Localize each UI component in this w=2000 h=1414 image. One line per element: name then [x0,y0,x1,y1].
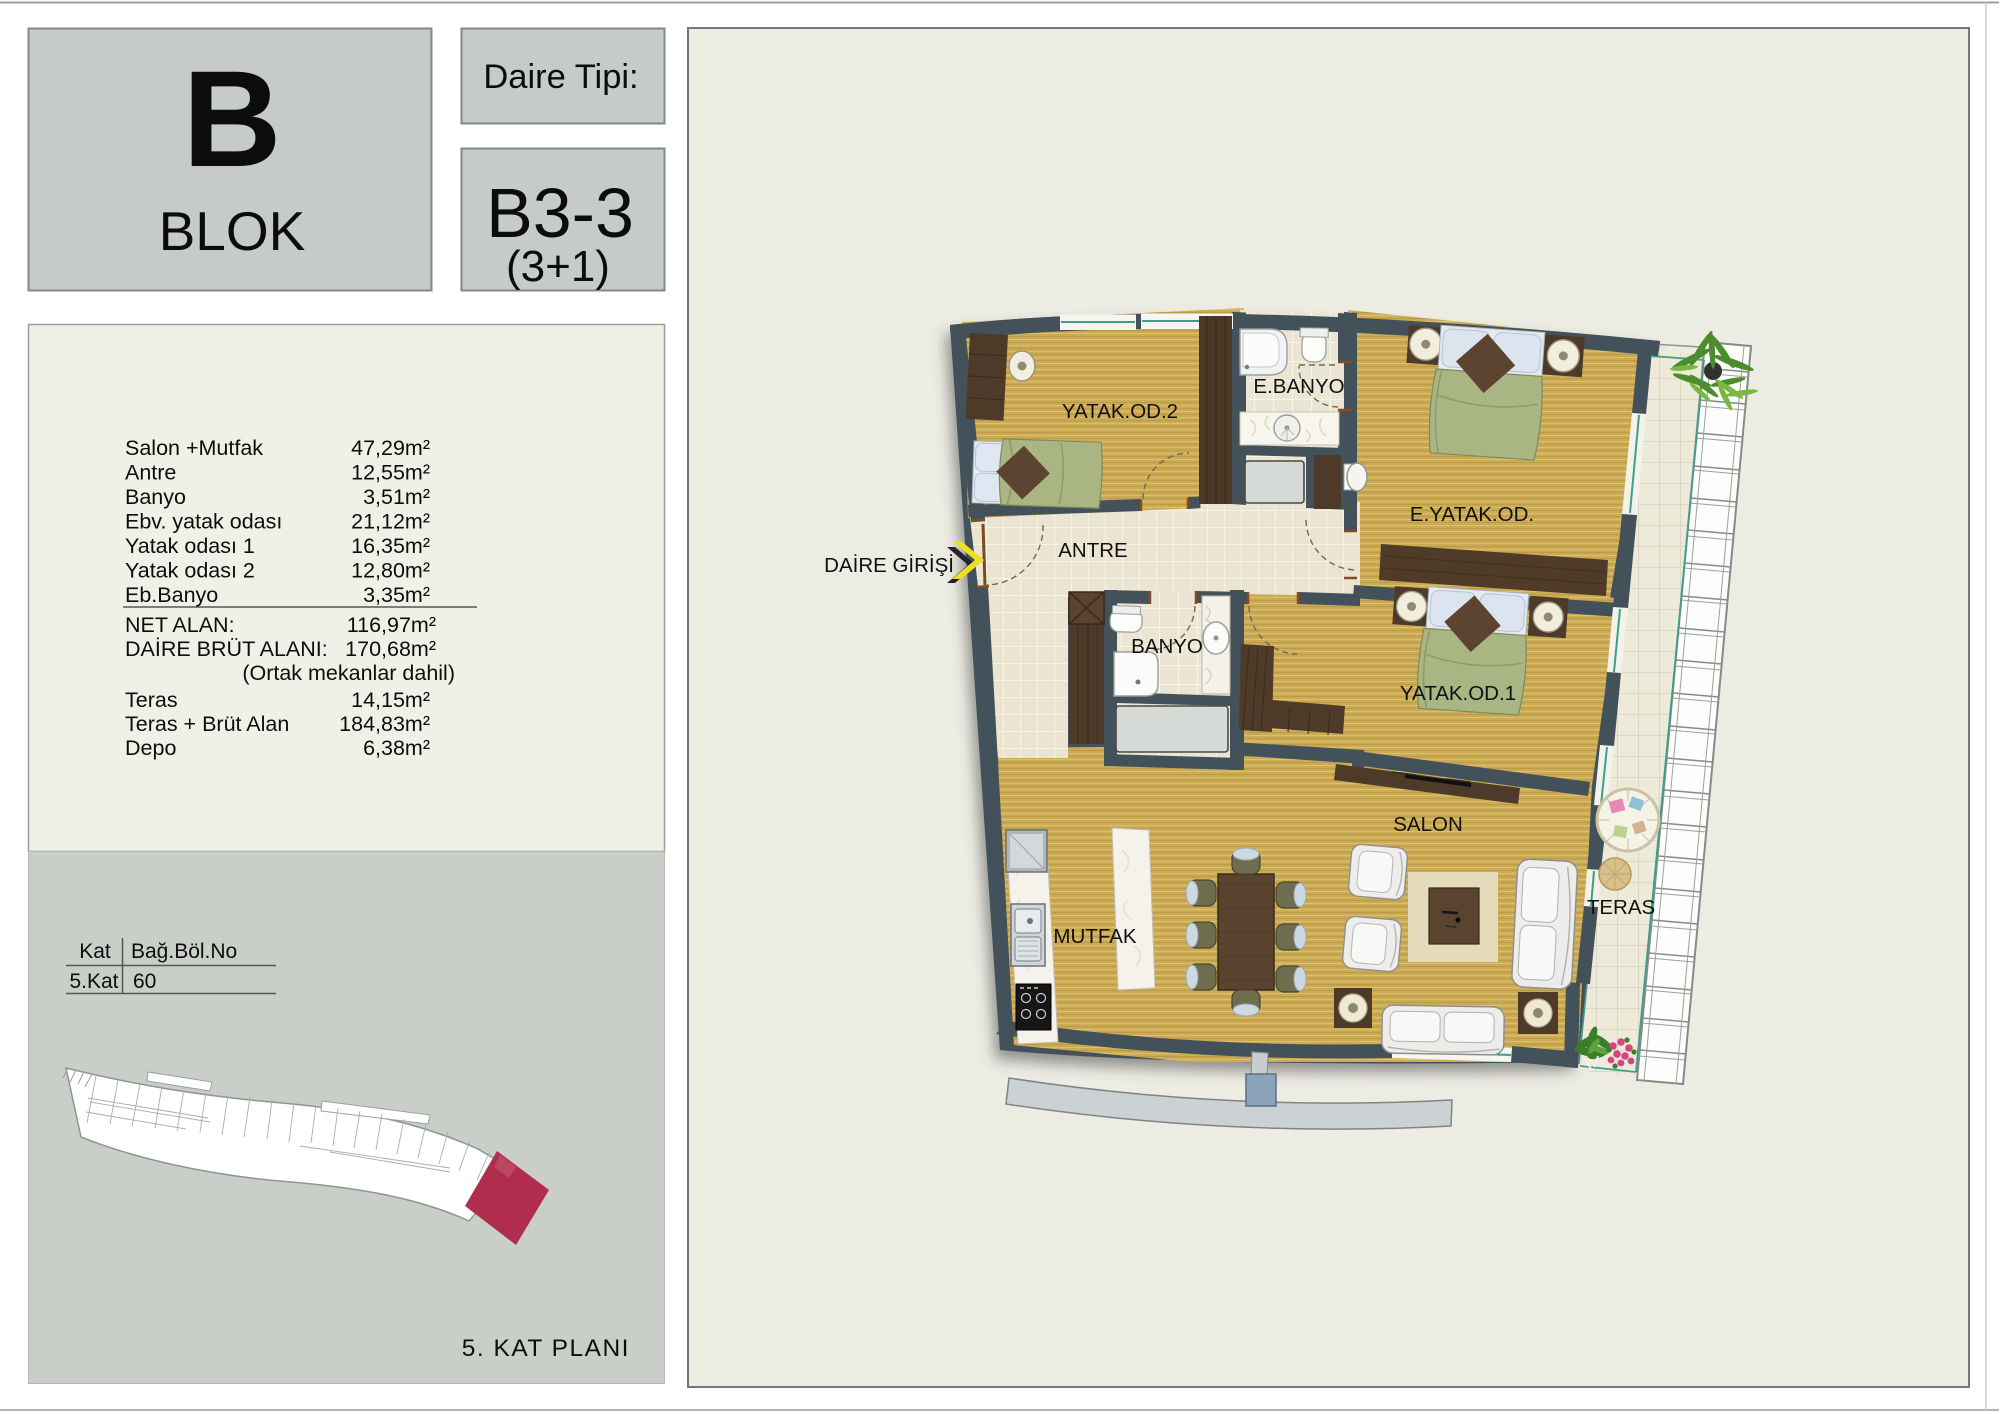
svg-text:12,80m²: 12,80m² [351,559,430,583]
svg-text:5.Kat: 5.Kat [69,970,118,993]
svg-text:12,55m²: 12,55m² [351,461,430,485]
svg-text:MUTFAK: MUTFAK [1053,925,1136,948]
svg-text:(Ortak mekanlar dahil): (Ortak mekanlar dahil) [242,661,455,685]
svg-text:B3-3: B3-3 [486,174,634,252]
svg-text:B: B [183,43,282,196]
svg-text:Antre: Antre [125,461,176,485]
svg-text:ANTRE: ANTRE [1058,539,1127,562]
svg-text:Ebv. yatak odası: Ebv. yatak odası [125,510,282,534]
svg-text:Depo: Depo [125,736,176,760]
svg-text:TERAS: TERAS [1587,896,1655,919]
svg-text:NET ALAN:: NET ALAN: [125,613,235,637]
svg-text:3,35m²: 3,35m² [363,583,430,607]
svg-text:184,83m²: 184,83m² [339,712,430,736]
svg-text:Daire Tipi:: Daire Tipi: [483,58,638,96]
svg-text:Bağ.Böl.No: Bağ.Böl.No [131,940,237,963]
svg-text:E.BANYO: E.BANYO [1253,375,1344,398]
svg-text:(3+1): (3+1) [506,242,610,291]
svg-text:Salon +Mutfak: Salon +Mutfak [125,436,263,460]
svg-text:YATAK.OD.1: YATAK.OD.1 [1400,682,1516,705]
svg-text:BLOK: BLOK [159,200,306,262]
svg-text:14,15m²: 14,15m² [351,688,430,712]
svg-text:47,29m²: 47,29m² [351,436,430,460]
svg-text:Teras + Brüt Alan: Teras + Brüt Alan [125,712,289,736]
svg-text:Yatak odası 1: Yatak odası 1 [125,534,255,558]
svg-text:6,38m²: 6,38m² [363,736,430,760]
svg-text:21,12m²: 21,12m² [351,510,430,534]
svg-text:DAİRE GİRİŞİ: DAİRE GİRİŞİ [824,554,954,577]
svg-text:BANYO: BANYO [1131,635,1203,658]
svg-text:Eb.Banyo: Eb.Banyo [125,583,218,607]
svg-text:Yatak odası 2: Yatak odası 2 [125,559,255,583]
svg-text:16,35m²: 16,35m² [351,534,430,558]
svg-text:Teras: Teras [125,688,178,712]
svg-text:5. KAT PLANI: 5. KAT PLANI [462,1335,630,1362]
svg-text:Banyo: Banyo [125,485,186,509]
svg-text:YATAK.OD.2: YATAK.OD.2 [1062,400,1178,423]
svg-text:Kat: Kat [79,940,111,963]
svg-text:60: 60 [133,970,156,993]
svg-text:3,51m²: 3,51m² [363,485,430,509]
svg-text:DAİRE BRÜT ALANI:: DAİRE BRÜT ALANI: [125,637,328,661]
svg-text:SALON: SALON [1393,813,1463,836]
svg-text:170,68m²: 170,68m² [345,637,436,661]
svg-text:116,97m²: 116,97m² [347,613,436,637]
svg-text:E.YATAK.OD.: E.YATAK.OD. [1410,503,1534,526]
